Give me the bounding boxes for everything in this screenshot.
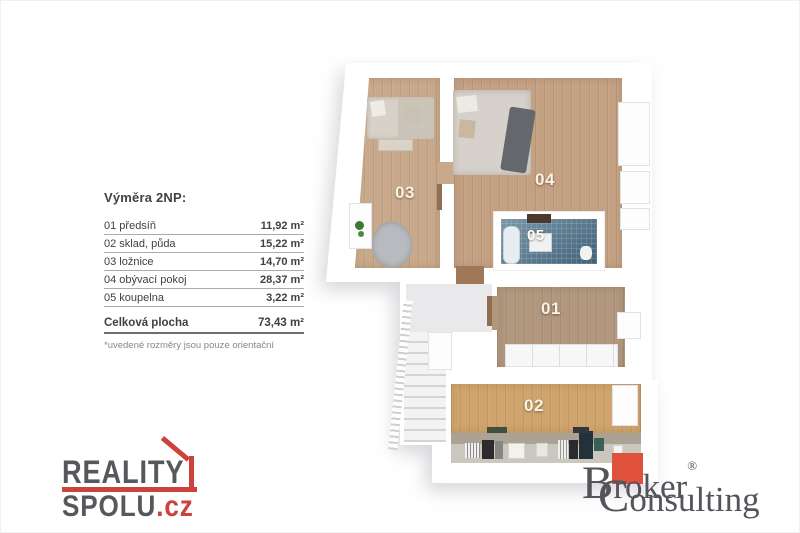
box-black [482,440,494,459]
window-niche-room04-lower [620,208,650,230]
plant-small-room03 [358,231,364,237]
reality-wordmark: REALITY [62,456,184,488]
counter-item-green [487,427,507,433]
window-niche-room01 [617,312,641,339]
bathtub [503,226,520,264]
pillow-room03 [370,100,386,117]
label-room-02: 02 [524,396,544,416]
consulting-initial: C [598,470,629,522]
spolu-text: SPOLU [62,490,156,523]
bench-room03 [378,139,413,151]
cz-tld-text: .cz [156,490,193,523]
counter-item-dark [573,427,589,433]
label-room-05: 05 [527,227,545,244]
stair-newel-post [428,332,452,370]
consulting-wordmark: Consulting [598,473,760,520]
door-leaf-room01 [487,296,492,326]
door-leaf-room04 [437,184,442,210]
plant-room03 [355,221,364,230]
window-niche-room04-middle [620,171,650,204]
stair-landing [406,284,492,332]
cabinet-room02 [612,385,638,426]
consulting-rest: onsulting [629,480,759,519]
label-room-01: 01 [541,299,561,319]
doorway-room03-room04 [437,162,454,184]
page: Výměra 2NP: 01 předsíň 11,92 m² 02 sklad… [0,0,800,533]
label-room-04: 04 [535,170,555,190]
bathroom-mirror [527,214,551,223]
box-small [536,443,548,457]
pillow-room04 [456,95,478,113]
registered-mark: ® [687,458,697,473]
spolu-wordmark: SPOLU.cz [62,492,194,522]
box-gray [495,441,503,459]
window-niche-room04-upper [618,102,650,166]
broker-consulting-logo: Broker® Consulting [558,438,798,533]
doorway-room01 [492,296,498,330]
toilet [580,246,592,260]
label-room-03: 03 [395,183,415,203]
wardrobe-room01 [505,344,618,367]
binder-striped [465,443,480,458]
blanket-room03 [398,98,433,138]
box-white [508,443,525,459]
threshold-landing [456,266,484,286]
pillow-tan-room04 [458,119,476,139]
reality-spolu-logo: REALITY SPOLU.cz [58,430,233,530]
